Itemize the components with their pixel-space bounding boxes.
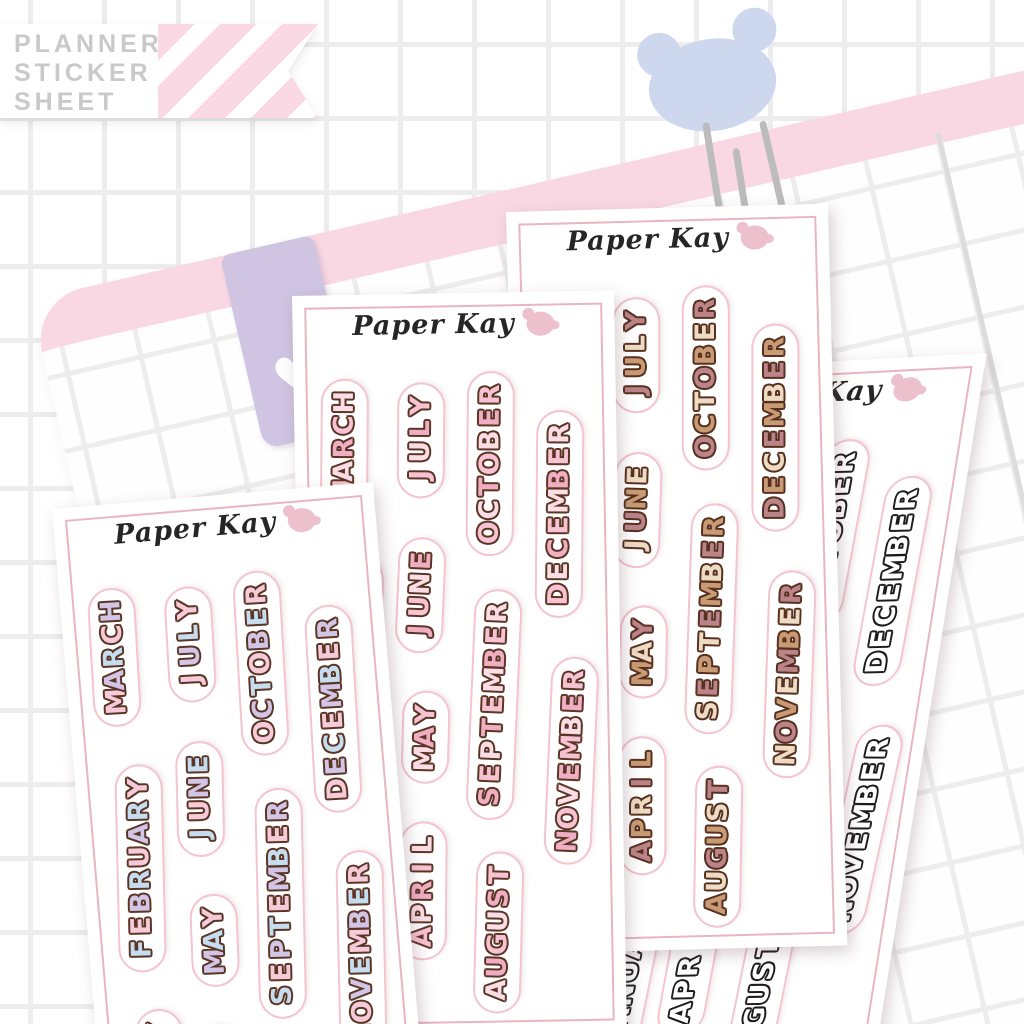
month-letter: T <box>478 863 523 887</box>
brand-name: Paper Kay <box>113 506 277 550</box>
month-letter: E <box>849 760 898 784</box>
month-letter: L <box>399 417 443 440</box>
month-letter: R <box>770 582 815 607</box>
month-letter: M <box>767 651 812 676</box>
month-letter: E <box>338 885 383 909</box>
month-sticker-august: AUGUST <box>475 853 523 1012</box>
month-letter: L <box>620 748 664 771</box>
month-sticker-may: MAY <box>621 607 667 697</box>
flag-stripe-tail <box>158 24 318 118</box>
month-letter: U <box>168 643 213 668</box>
month-letter: E <box>469 406 513 429</box>
month-letter: H <box>89 599 134 624</box>
flag-label-line: STICKER <box>14 59 158 88</box>
month-letter: A <box>118 822 163 846</box>
month-letter: S <box>477 886 522 910</box>
month-letter: D <box>537 583 581 606</box>
month-letter: T <box>240 673 285 698</box>
flag-label-line: PLANNER <box>14 30 158 59</box>
month-letter: U <box>695 869 739 893</box>
month-sticker-july: JULY <box>614 299 658 411</box>
month-letter: A <box>621 640 665 664</box>
month-letter: E <box>307 639 352 664</box>
month-letter: T <box>468 475 512 498</box>
month-letter: E <box>475 623 520 648</box>
month-sticker-november: NOVEMBER <box>337 852 386 1024</box>
month-letter: E <box>879 511 927 535</box>
month-letter: B <box>309 662 354 687</box>
month-letter: E <box>687 676 732 701</box>
month-letter: Y <box>404 702 449 726</box>
month-letter: P <box>662 978 710 1002</box>
month-sticker-may: MAY <box>191 895 239 986</box>
product-photo-stage: ♥ Paper KayMARCHFEBRUARYJANUARYJULYJUNEM… <box>0 0 1024 1024</box>
month-letter: E <box>469 761 514 786</box>
month-letter: B <box>257 845 302 869</box>
month-sticker-july: JULY <box>399 384 444 496</box>
month-sticker-november: NOVEMBER <box>545 658 598 864</box>
month-letter: C <box>753 451 797 474</box>
month-letter: E <box>858 627 906 651</box>
month-letter: G <box>731 1006 779 1024</box>
month-letter: L <box>401 833 445 856</box>
bear-logo-icon <box>527 311 555 335</box>
month-letter: S <box>741 959 789 983</box>
month-letter: E <box>692 538 737 563</box>
month-letter: B <box>875 534 923 558</box>
month-letter: B <box>338 908 383 932</box>
month-letter: M <box>753 405 797 428</box>
month-letter: B <box>768 628 813 653</box>
month-letter: O <box>546 806 591 831</box>
month-letter: I <box>401 856 445 879</box>
month-letter: E <box>472 692 517 717</box>
month-letter: E <box>867 580 915 604</box>
month-letter: B <box>550 714 595 739</box>
month-letter: R <box>234 582 279 607</box>
month-letter: A <box>322 460 366 483</box>
month-letter: G <box>696 846 740 870</box>
month-letter: B <box>844 783 893 807</box>
month-letter: N <box>178 776 223 800</box>
month-letter: F <box>120 937 165 961</box>
month-letter: E <box>340 954 385 978</box>
month-letter: R <box>322 437 366 460</box>
month-sticker-september: SEPTEMBER <box>256 789 305 1017</box>
month-letter: S <box>686 698 731 723</box>
sticker-sheet-pastel-multi: Paper KayMARCHFEBRUARYJANUARYJULYJUNEMAY… <box>52 482 435 1024</box>
month-letter: H <box>323 391 367 414</box>
month-letter: E <box>548 760 593 785</box>
month-letter: R <box>92 645 137 670</box>
month-letter: A <box>192 928 237 953</box>
month-sticker-december: DECEMBER <box>537 412 583 616</box>
month-letter: R <box>476 600 521 625</box>
month-letter: V <box>766 696 811 721</box>
month-letter: D <box>315 776 360 801</box>
month-letter: J <box>614 378 658 401</box>
month-sticker-april: APRIL <box>620 738 664 873</box>
month-letter: E <box>258 891 303 915</box>
month-letter: B <box>237 627 282 652</box>
month-letter: E <box>684 320 728 343</box>
month-letter: R <box>620 794 664 817</box>
month-sticker-june: JUNE <box>177 743 224 856</box>
month-sticker-december: DECEMBER <box>753 326 797 530</box>
month-letter: M <box>310 685 355 710</box>
month-letter: S <box>468 784 513 809</box>
month-letter: E <box>551 691 596 716</box>
month-letter: A <box>93 668 138 693</box>
month-letter: T <box>697 777 741 801</box>
month-letter: M <box>690 584 735 609</box>
month-letter: J <box>399 463 443 486</box>
month-letter: E <box>753 428 797 451</box>
bear-logo-icon <box>741 225 770 250</box>
month-letter: U <box>475 955 520 979</box>
month-letter: E <box>314 753 359 778</box>
month-letter: B <box>691 561 736 586</box>
month-letter: N <box>545 829 590 854</box>
month-sticker-august: AUGUST <box>695 767 742 926</box>
month-letter: Y <box>399 394 443 417</box>
month-letter: V <box>340 977 385 1001</box>
month-letter: E <box>769 605 814 630</box>
month-letter: O <box>341 1000 386 1024</box>
month-letter: C <box>90 622 135 647</box>
month-letter: E <box>120 914 165 938</box>
month-sticker-february: FEBRUARY <box>116 766 165 971</box>
month-letter: N <box>764 742 809 767</box>
month-letter: R <box>753 336 797 359</box>
month-letter: R <box>469 383 513 406</box>
month-letter: M <box>473 669 518 694</box>
month-sticker-december: DECEMBER <box>852 477 934 684</box>
month-letter: A <box>475 978 520 1002</box>
brand-logo: Paper Kay <box>53 498 376 556</box>
month-sticker-july: JULY <box>165 587 215 701</box>
bear-logo-icon <box>892 376 924 402</box>
brand-name: Paper Kay <box>352 308 515 342</box>
month-letter: R <box>337 862 382 886</box>
month-letter: E <box>538 445 582 468</box>
month-letter: S <box>261 983 306 1007</box>
month-letter: O <box>468 521 512 544</box>
month-letter: T <box>471 715 516 740</box>
brand-logo: Paper Kay <box>506 220 829 259</box>
month-letter: A <box>620 840 664 863</box>
month-letter: O <box>765 719 810 744</box>
month-sticker-september: SEPTEMBER <box>686 505 738 733</box>
month-sticker-january: JANUARY <box>136 1010 187 1024</box>
month-letter: U <box>696 823 740 847</box>
month-letter: M <box>403 748 448 772</box>
month-letter: T <box>684 389 728 412</box>
month-letter: U <box>398 594 443 619</box>
month-letter: E <box>311 708 356 733</box>
month-sticker-may: MAY <box>402 692 448 782</box>
month-letter: C <box>537 537 581 560</box>
month-letter: M <box>339 931 384 955</box>
month-letter: B <box>684 343 728 366</box>
month-sticker-june: JUNE <box>613 453 661 566</box>
month-letter: Y <box>137 1020 182 1024</box>
brand-logo: Paper Kay <box>292 306 614 343</box>
month-letter: C <box>313 730 358 755</box>
month-letter: M <box>621 663 665 687</box>
month-letter: B <box>538 468 582 491</box>
month-letter: R <box>692 515 737 540</box>
month-letter: R <box>884 487 932 511</box>
month-sticker-december: DECEMBER <box>306 606 362 812</box>
month-letter: R <box>854 737 903 761</box>
flag-label: PLANNER STICKER SHEET <box>0 24 158 118</box>
month-letter: J <box>397 617 442 642</box>
month-sticker-october: OCTOBER <box>684 287 728 468</box>
month-letter: P <box>620 817 664 840</box>
month-letter: R <box>684 297 728 320</box>
month-letter: P <box>259 937 304 961</box>
month-letter: B <box>474 646 519 671</box>
month-letter: O <box>468 452 512 475</box>
month-letter: E <box>236 604 281 629</box>
month-letter: M <box>871 557 919 581</box>
month-letter: M <box>258 868 303 892</box>
month-letter: U <box>614 509 659 534</box>
month-letter: N <box>399 571 444 596</box>
month-letter: E <box>400 548 445 573</box>
month-letter: Y <box>191 905 236 930</box>
month-letter: Y <box>622 617 666 641</box>
month-letter: I <box>620 771 664 794</box>
brand-name: Paper Kay <box>566 222 729 257</box>
month-letter: E <box>537 560 581 583</box>
month-letter: B <box>119 891 164 915</box>
month-letter: P <box>470 738 515 763</box>
month-letter: R <box>117 799 162 823</box>
month-letter: E <box>260 960 305 984</box>
month-letter: M <box>549 737 594 762</box>
month-letter: E <box>753 359 797 382</box>
month-letter: C <box>323 414 367 437</box>
month-letter: E <box>689 607 734 632</box>
month-letter: U <box>614 355 658 378</box>
month-letter: M <box>538 491 582 514</box>
month-letter: N <box>615 486 660 511</box>
month-letter: J <box>170 666 215 691</box>
month-letter: M <box>193 951 238 976</box>
month-letter: E <box>616 463 661 488</box>
month-letter: V <box>547 783 592 808</box>
month-letter: P <box>688 653 733 678</box>
month-letter: E <box>537 514 581 537</box>
month-letter: U <box>477 909 522 933</box>
month-letter: T <box>259 914 304 938</box>
month-letter: C <box>684 412 728 435</box>
month-letter: Y <box>116 776 161 800</box>
month-letter: C <box>241 696 286 721</box>
month-sticker-october: OCTOBER <box>468 373 514 554</box>
month-letter: C <box>468 498 512 521</box>
month-sticker-june: JUNE <box>396 538 445 652</box>
month-letter: U <box>399 440 443 463</box>
month-letter: A <box>695 892 739 916</box>
month-letter: T <box>688 630 733 655</box>
month-letter: G <box>476 932 521 956</box>
month-letter: A <box>658 1001 706 1024</box>
month-sticker-september: SEPTEMBER <box>467 590 521 819</box>
month-letter: A <box>403 725 448 749</box>
month-letter: L <box>167 620 212 645</box>
month-letter: L <box>614 332 658 355</box>
month-letter: B <box>753 382 797 405</box>
month-letter: R <box>306 616 351 641</box>
month-letter: Y <box>166 597 211 622</box>
month-letter: O <box>684 435 728 458</box>
month-letter: E <box>753 474 797 497</box>
month-letter: J <box>179 822 224 846</box>
month-letter: U <box>178 799 223 823</box>
month-letter: R <box>256 799 301 823</box>
month-letter: Y <box>614 309 658 332</box>
bear-clip-icon <box>640 16 795 147</box>
month-letter: U <box>736 983 784 1007</box>
flag-label-line: SHEET <box>14 88 158 117</box>
month-sticker-march: MARCH <box>89 589 141 726</box>
month-letter: E <box>767 674 812 699</box>
month-sticker-november: NOVEMBER <box>764 572 815 777</box>
month-letter: O <box>238 650 283 675</box>
month-letter: U <box>118 845 163 869</box>
month-letter: D <box>753 497 797 520</box>
month-letter: D <box>854 650 902 674</box>
month-letter: R <box>119 868 164 892</box>
month-letter: S <box>697 800 741 824</box>
month-letter: J <box>614 532 659 557</box>
bear-logo-icon <box>287 507 317 533</box>
month-letter: R <box>538 422 582 445</box>
month-letter: M <box>839 806 888 830</box>
month-letter: C <box>862 604 910 628</box>
month-letter: B <box>468 429 512 452</box>
month-letter: E <box>177 753 222 777</box>
month-letter: R <box>666 954 714 978</box>
month-letter: M <box>94 691 139 716</box>
month-letter: R <box>552 668 597 693</box>
month-letter: E <box>257 822 302 846</box>
month-letter: O <box>242 719 287 744</box>
month-sticker-october: OCTOBER <box>234 572 288 755</box>
month-letter: O <box>684 366 728 389</box>
planner-sticker-flag: PLANNER STICKER SHEET <box>0 24 318 118</box>
